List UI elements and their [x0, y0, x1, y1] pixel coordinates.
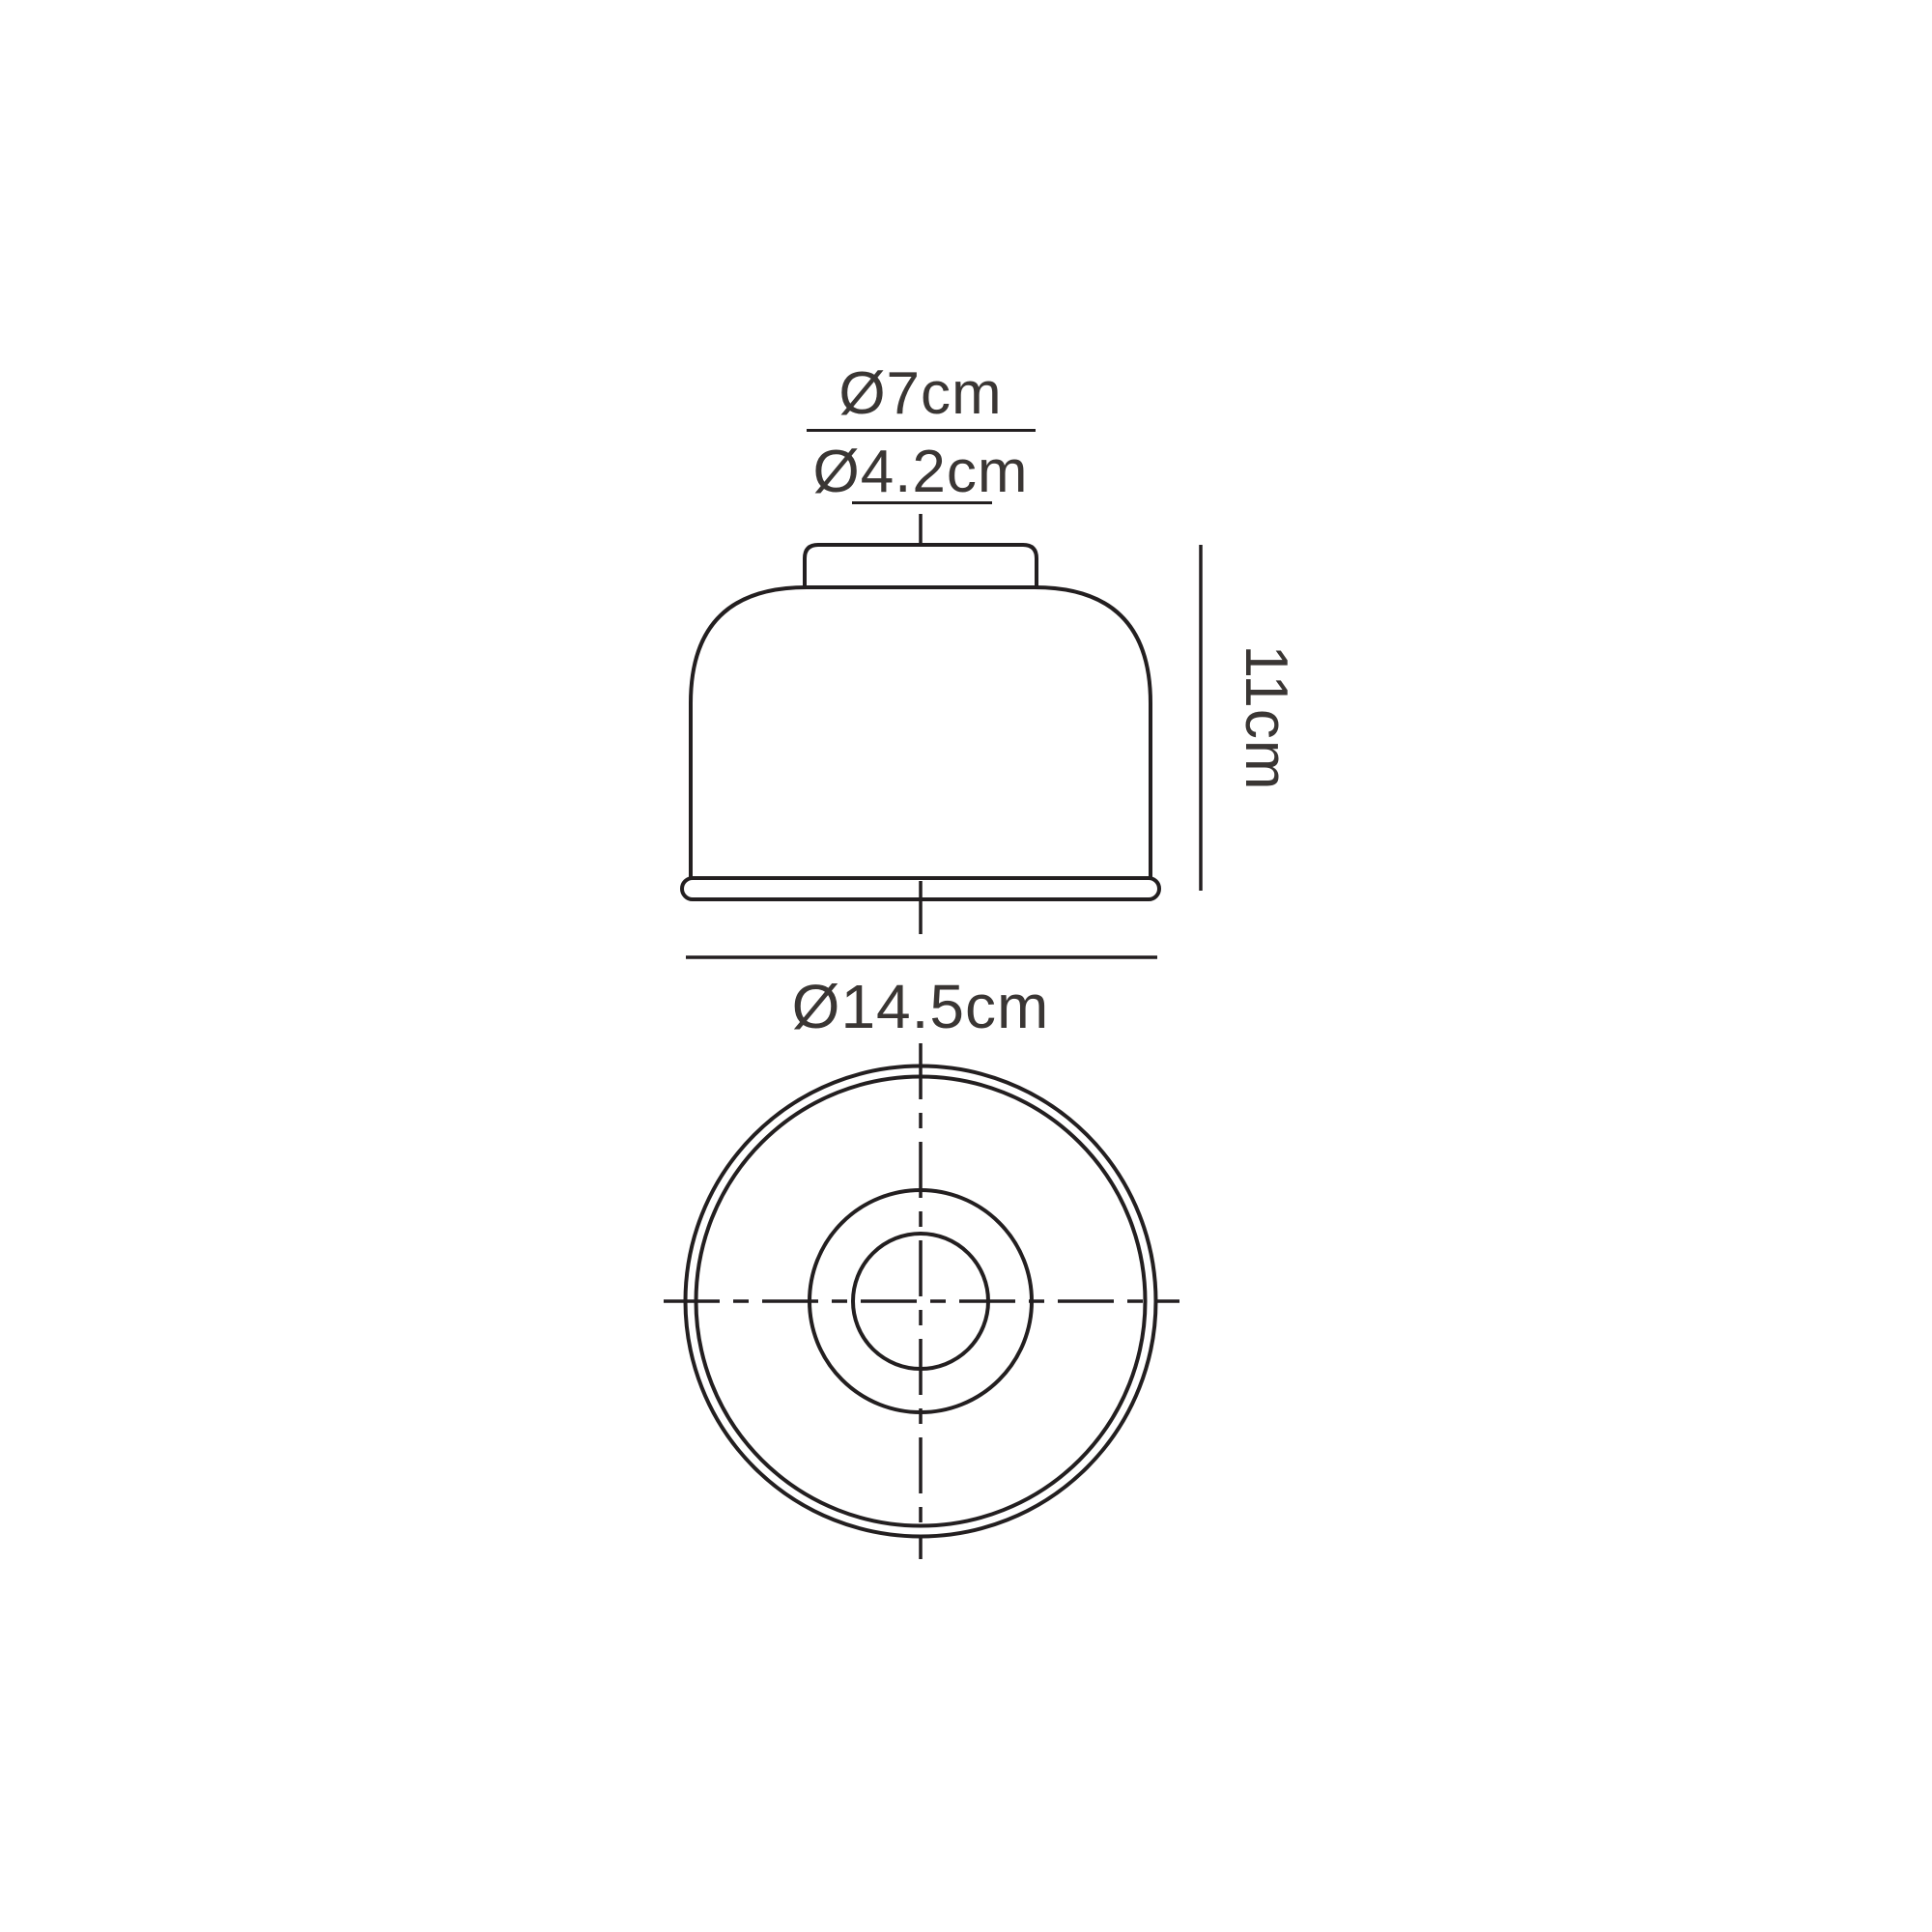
lampshade-dimension-drawing: Ø7cm Ø4.2cm 11cm Ø14.5cm — [0, 0, 1932, 1932]
mesh-dome — [691, 587, 1151, 879]
label-height: 11cm — [1233, 644, 1299, 790]
label-neck-inner-diameter: Ø4.2cm — [812, 439, 1028, 505]
drawing-canvas: Ø7cm Ø4.2cm 11cm Ø14.5cm — [0, 0, 1932, 1932]
neck-outline — [805, 545, 1037, 589]
label-neck-outer-diameter: Ø7cm — [838, 360, 1002, 427]
label-base-diameter: Ø14.5cm — [792, 972, 1050, 1041]
front-view: Ø7cm Ø4.2cm 11cm Ø14.5cm — [682, 360, 1299, 1041]
plan-view — [664, 1043, 1179, 1559]
